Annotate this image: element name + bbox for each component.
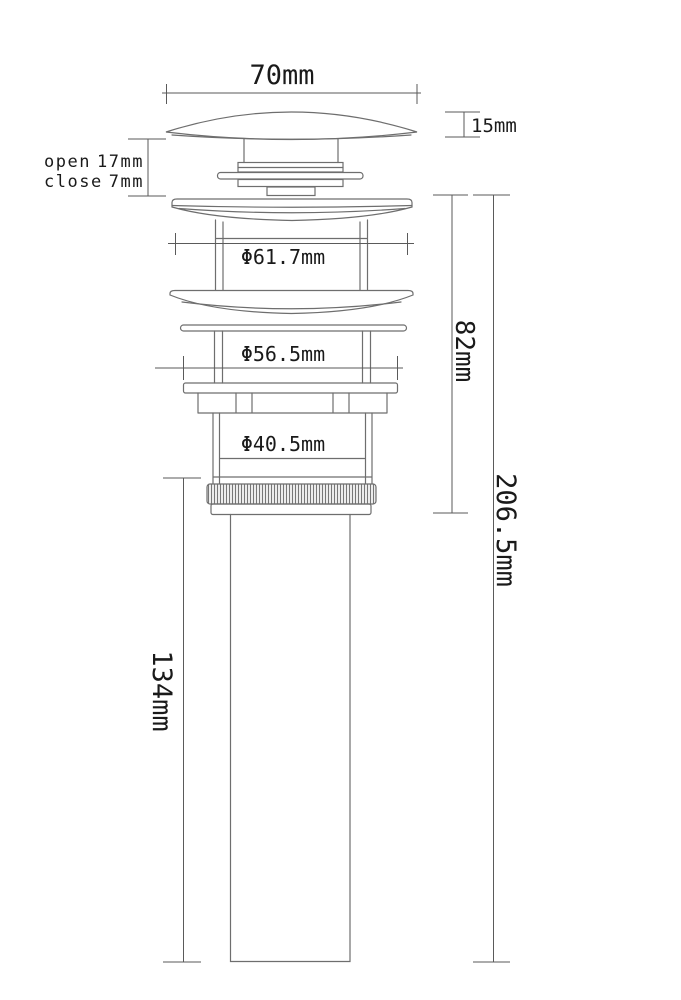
label-flange-diameter: Φ61.7mm [241, 245, 325, 269]
flange-top-edge [172, 206, 412, 208]
flange-outline [172, 199, 412, 221]
ring-wide-washer [218, 173, 364, 180]
dimension-labels: 70mm 15mm open 17mm close 7mm Φ61.7mm Φ5… [44, 60, 521, 732]
knurl-base-plate [211, 504, 371, 515]
lock-nut [198, 393, 387, 413]
ring-collar [267, 187, 315, 196]
cap-outline [166, 112, 417, 140]
label-close: close [44, 172, 103, 192]
drain-dimension-diagram: 70mm 15mm open 17mm close 7mm Φ61.7mm Φ5… [0, 0, 681, 1000]
ring-lower [238, 180, 343, 187]
knurled-ring-fill [207, 484, 376, 504]
label-open: open [44, 152, 91, 172]
label-open-value: 17mm [97, 152, 144, 172]
cap-stem [244, 139, 338, 163]
label-upper-height: 82mm [449, 320, 479, 383]
label-body-diameter: Φ40.5mm [241, 432, 325, 456]
label-washer-diameter: Φ56.5mm [241, 342, 325, 366]
label-close-value: 7mm [109, 172, 144, 192]
lower-dish-outline [170, 291, 413, 314]
flange-inner-curve [179, 209, 405, 213]
thin-washer [181, 325, 407, 331]
lower-dish-inner-curve [182, 302, 401, 309]
label-cap-width: 70mm [249, 60, 314, 91]
flat-plate [184, 383, 398, 393]
label-cap-height: 15mm [471, 115, 517, 137]
technical-drawing-svg: 70mm 15mm open 17mm close 7mm Φ61.7mm Φ5… [0, 0, 681, 1000]
drain-part-drawing [166, 112, 417, 962]
tail-pipe [231, 515, 351, 962]
label-total-height: 206.5mm [490, 473, 521, 587]
dimension-lines [128, 84, 510, 962]
label-tailpipe-height: 134mm [146, 650, 177, 731]
